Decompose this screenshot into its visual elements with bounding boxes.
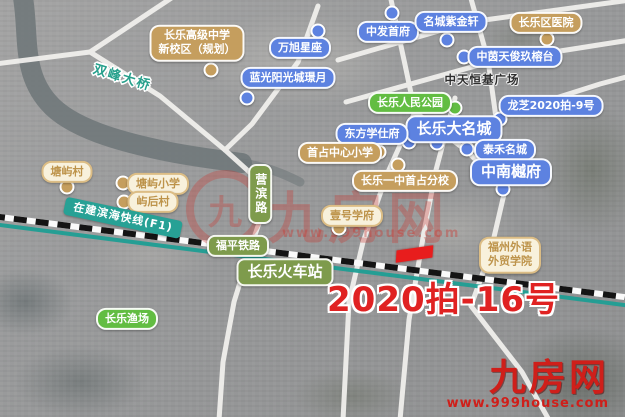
map-label-changle-railway-station: 长乐火车站 <box>236 258 333 286</box>
map-label-languang-yangguangcheng-jingyue: 蓝光阳光城璟月 <box>241 67 336 89</box>
map-label-changle-peoples-park: 长乐人民公园 <box>368 92 452 114</box>
map-label-wanxu-xingzuo: 万旭星座 <box>269 37 331 59</box>
map-label-zhongfa-shoufu: 中发首府 <box>357 21 419 43</box>
site-logo: 九房网 www.999house.com <box>447 359 609 411</box>
map-label-tangyu-village: 塘屿村 <box>42 161 93 183</box>
map-marker-changle-senior-high-new-campus <box>204 63 219 78</box>
site-logo-url: www.999house.com <box>447 396 609 411</box>
map-label-changle-district-hospital: 长乐区医院 <box>510 12 583 34</box>
map-label-changle-fishery: 长乐渔场 <box>96 308 158 330</box>
map-label-yihao-xuefu: 壹号学府 <box>321 205 383 227</box>
auction-lot-caption: 2020拍-16号 <box>327 272 560 321</box>
map-marker-zhongfa-shoufu <box>385 6 400 21</box>
map-label-fuping-railway: 福平铁路 <box>207 235 269 257</box>
map-label-zhongnan-yuefu: 中南樾府 <box>470 158 552 186</box>
map-label-yuhou-village: 屿后村 <box>128 191 179 213</box>
map-label-shouzhan-central-primary: 首占中心小学 <box>298 142 382 164</box>
satellite-map: 九 九房网 www.999house.com 长乐高级中学新校区（规划）万旭星座… <box>0 0 625 417</box>
site-logo-brand: 九房网 <box>447 359 609 396</box>
map-label-changle-senior-high-new-campus: 长乐高级中学新校区（规划） <box>150 25 245 62</box>
map-marker-mingcheng-zijinxuan <box>440 33 455 48</box>
map-label-fuzhou-foreign-languages-college: 福州外语外贸学院 <box>479 237 541 274</box>
map-marker-taihe-mingcheng <box>460 142 475 157</box>
map-marker-languang-yangguangcheng-jingyue <box>240 91 255 106</box>
map-label-zhongyin-tianjun-jiurongtai: 中茵天俊玖榕台 <box>468 46 563 68</box>
map-label-longzhi-2020-pai-9: 龙芝2020拍-9号 <box>499 95 604 117</box>
map-label-mingcheng-zijinxuan: 名城紫金轩 <box>415 11 488 33</box>
map-label-changle-yizhong-shouzhan-branch: 长乐一中首占分校 <box>352 170 458 192</box>
map-label-yingbin-road: 营滨路 <box>248 164 272 224</box>
map-label-zhongtian-hengji-plaza: 中天恒基广场 <box>438 71 527 90</box>
